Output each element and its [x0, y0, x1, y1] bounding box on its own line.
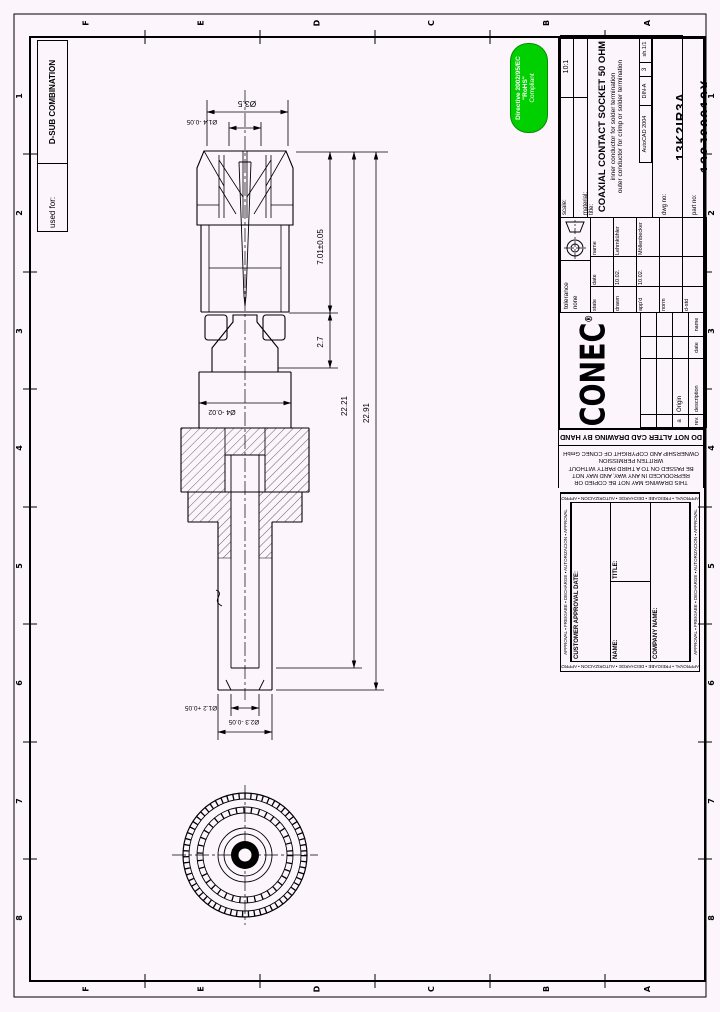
tolerance-cell: tolerance none [560, 260, 591, 313]
rev-description: Origin [672, 358, 689, 415]
zone-number-left: 1 [16, 93, 24, 99]
approval-strip-left: APPROVAL ▪ FREIGABE ▪ DECHARGE ▪ AUTORIZ… [561, 502, 571, 662]
zone-number-right: 7 [708, 798, 716, 804]
title-label: title: [588, 36, 596, 217]
rev-header: rev. [688, 414, 707, 428]
approval-date-cell: CUSTOMER APPROVAL DATE: [571, 502, 611, 662]
sign-row-label: app'd [636, 286, 660, 313]
approval-block: APPROVAL ▪ FREIGABE ▪ DECHARGE ▪ AUTORIZ… [560, 492, 700, 672]
zone-letter-bottom: B [543, 986, 551, 992]
zone-number-left: 8 [16, 915, 24, 921]
zone-letter-top: B [543, 20, 551, 26]
dim-len-2221: 22.21 [340, 395, 349, 416]
scale-value: 10:1 [560, 35, 574, 98]
format-cell: DIN-A [639, 76, 652, 106]
rev-header: name [688, 312, 707, 337]
sign-row-label: d-std [682, 286, 707, 313]
copyright-block: THIS DRAWING MAY NOT BE COPIED OR REPROD… [558, 430, 705, 488]
rohs-badge: Directive 2002/95/EC "RoHS" Compliant [510, 45, 546, 133]
rev-date [672, 336, 689, 359]
tolerance-value: none [570, 261, 579, 312]
zone-letter-bottom: E [198, 986, 206, 991]
dim-dia-23: Ø2.3 -0.05 [228, 718, 259, 725]
approval-title-label: TITLE: [611, 503, 619, 581]
material-value [573, 35, 588, 98]
dim-dia-3-5: Ø3.5 [238, 99, 257, 109]
approval-date-label: CUSTOMER APPROVAL DATE: [572, 503, 580, 661]
sheet-number: sh.1/1 [639, 35, 652, 63]
zone-letter-top: C [428, 20, 436, 26]
approval-fields: CUSTOMER APPROVAL DATE: NAME: TITLE: COM… [571, 502, 690, 662]
zone-number-right: 5 [708, 563, 716, 569]
zone-number-right: 4 [708, 445, 716, 451]
approval-strip-right: APPROVAL ▪ FREIGABE ▪ DECHARGE ▪ AUTORIZ… [690, 502, 700, 662]
first-angle-projection-icon [561, 218, 590, 260]
copyright-line: WRITTEN PERMISSION [559, 456, 703, 463]
conec-logo: CONEC® [560, 313, 632, 428]
rev-value: a [672, 414, 689, 428]
zone-number-left: 4 [16, 445, 24, 451]
dwg-no-cell: dwg no: 13K2IR3A [652, 35, 683, 218]
rev-header: description [688, 358, 707, 415]
material-cell: material: [573, 97, 588, 218]
zone-letter-bottom: D [313, 986, 321, 993]
approval-strip-bottom: APPROVAL ▪ FREIGABE ▪ DECHARGE ▪ AUTORIZ… [561, 662, 699, 672]
zone-letter-bottom: F [83, 986, 91, 991]
zone-number-left: 3 [16, 328, 24, 334]
zone-number-left: 6 [16, 680, 24, 686]
approval-title-cell: TITLE: [610, 502, 651, 582]
dim-len-701: 7.01±0.05 [316, 229, 325, 265]
zone-letter-bottom: C [428, 986, 436, 992]
registered-mark: ® [583, 315, 594, 323]
zone-letter-bottom: A [644, 986, 652, 992]
zone-letter-top: F [83, 20, 91, 25]
approval-name-label: NAME: [611, 582, 619, 661]
title-block: CONEC® a Origin rev. description date na… [558, 37, 705, 430]
part-no-value: 132J20019X [697, 35, 707, 217]
rohs-compliant: Compliant [529, 44, 536, 132]
rohs-name: "RoHS" [522, 44, 529, 132]
used-for-label: used for: [38, 163, 67, 231]
zone-number-right: 2 [708, 210, 716, 216]
sign-row-name: Lehmkühler [613, 217, 637, 257]
rev-header: date [688, 336, 707, 359]
sign-header: date [590, 256, 614, 287]
used-for-box: used for: D-SUB COMBINATION [37, 40, 68, 232]
sign-row-date: 10.02. [613, 256, 637, 287]
zone-letter-top: E [198, 20, 206, 25]
drawing-subtitle-1: inner conductor for solder termination [610, 36, 617, 217]
cad-system: AutoCAD 2004 [639, 105, 652, 163]
copyright-line: THIS DRAWING MAY NOT BE COPIED OR [559, 478, 703, 485]
tolerance-label: tolerance [561, 261, 570, 312]
drawing-sheet: Ø3.5 Ø1.4 -0.05 7.01±0.05 2.7 22.21 22.9… [0, 0, 720, 1012]
zone-number-right: 8 [708, 915, 716, 921]
sign-row-label: norm [659, 286, 683, 313]
scale-cell: scale: [560, 97, 574, 218]
approval-company-label: COMPANY NAME: [651, 503, 659, 661]
zone-number-left: 7 [16, 798, 24, 804]
zone-number-right: 3 [708, 328, 716, 334]
drawing-title: COAXIAL CONTACT SOCKET 50 OHM [597, 36, 608, 217]
scale-label: scale: [561, 199, 569, 217]
sign-row-date: 10.02. [636, 256, 660, 287]
zone-letter-top: A [644, 20, 652, 26]
projection-symbol [560, 217, 591, 261]
zone-number-right: 6 [708, 680, 716, 686]
dim-len-2291: 22.91 [362, 402, 371, 423]
copyright-line: REPRODUCED IN ANY WAY, AND MAY NOT [559, 471, 703, 478]
rohs-oval: Directive 2002/95/EC "RoHS" Compliant [510, 43, 548, 133]
drawing-subtitle-2: outer conductor for crimp or solder term… [617, 36, 624, 217]
dim-dia-4: Ø4 -0.02 [208, 408, 235, 415]
sign-header: name [590, 217, 614, 257]
zone-letter-top: D [313, 20, 321, 27]
format-size: 3 [639, 62, 652, 77]
sign-row-name: Möllenbecker [636, 217, 660, 257]
approval-company-cell: COMPANY NAME: [650, 502, 690, 662]
zone-number-right: 1 [708, 93, 716, 99]
used-for-value: D-SUB COMBINATION [38, 41, 67, 163]
dim-dia-12: Ø1.2 +0.05 [184, 704, 217, 711]
approval-name-cell: NAME: [610, 581, 651, 662]
sign-row-label: drawn [613, 286, 637, 313]
zone-number-left: 2 [16, 210, 24, 216]
copyright-line: BE PASSED ON TO A THIRD PARTY WITHOUT [559, 463, 703, 470]
rev-name [672, 312, 689, 337]
sign-header: state [590, 286, 614, 313]
dim-dia-tip: Ø1.4 -0.05 [186, 118, 217, 125]
part-no-cell: part no: 132J20019X [682, 35, 707, 218]
rohs-directive: Directive 2002/95/EC [515, 44, 522, 132]
dimension-texts: Ø3.5 Ø1.4 -0.05 7.01±0.05 2.7 22.21 22.9… [184, 99, 371, 725]
dim-len-27: 2.7 [316, 336, 325, 348]
zone-number-left: 5 [16, 563, 24, 569]
copyright-line: OWNERSHIP AND COPYRIGHT OF CONEC GmbH [559, 449, 703, 456]
part-no-label: part no: [691, 195, 698, 217]
do-not-alter-warning: DO NOT ALTER CAD DRAWING BY HAND [559, 433, 703, 446]
dwg-no-label: dwg no: [661, 194, 668, 217]
title-cell: title: COAXIAL CONTACT SOCKET 50 OHM inn… [587, 35, 653, 218]
